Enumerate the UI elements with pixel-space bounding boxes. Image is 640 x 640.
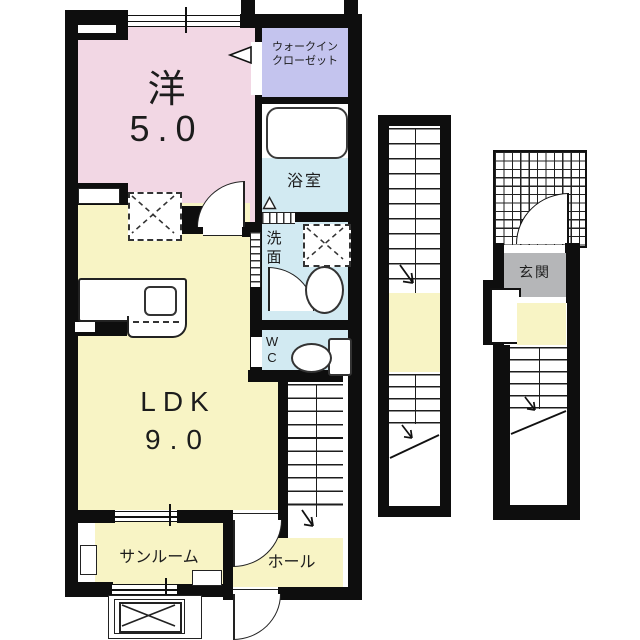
- bathroom-label: 浴室: [262, 167, 348, 191]
- bath-door-triangle-icon: [262, 196, 277, 210]
- washroom-sliding-door: [250, 232, 261, 287]
- laundry-x-icon: [121, 604, 176, 627]
- wall-ldk-bottom-a: [65, 510, 115, 523]
- rt-landing-floor: [517, 303, 566, 345]
- rt-threshold-porch: [504, 245, 565, 253]
- laundry-machine-box: [119, 602, 182, 633]
- mid-stairs-lower-treads: [389, 374, 440, 424]
- floor-plan: 洋 5.0 LDK 9.0 ウォークイン クローゼット 浴室 洗 面 W C サ…: [0, 0, 640, 640]
- wall-bed-bath: [255, 103, 262, 222]
- washroom-label-char2: 面: [264, 248, 284, 267]
- western-room-size: 5.0: [78, 108, 255, 150]
- kitchen-counter-front: [127, 316, 187, 338]
- toilet-bowl-icon: [291, 343, 332, 373]
- rt-wall-bottom: [493, 505, 580, 520]
- sunroom-small-box: [192, 570, 222, 586]
- washing-machine-space: [303, 224, 351, 267]
- kitchen-counter-dashes: [133, 321, 179, 323]
- ldk-size: 9.0: [78, 424, 278, 456]
- window-tick-top: [185, 7, 187, 33]
- washroom-label: 洗 面: [264, 229, 284, 267]
- window-bedroom-top: [128, 15, 240, 27]
- wc-label-char1: W: [263, 334, 281, 350]
- sunroom-label: サンルーム: [95, 543, 223, 567]
- main-stairs-treads: [288, 384, 343, 517]
- wic-label: ウォークイン クローゼット: [261, 40, 349, 68]
- window-tick-sunroom-top: [169, 504, 171, 526]
- rt-wall-right-upper: [565, 243, 580, 303]
- wall-kitchen-slot: [75, 322, 95, 332]
- basin-icon: [305, 266, 344, 314]
- wc-label: W C: [263, 334, 281, 366]
- ldk-label: LDK: [78, 386, 278, 418]
- entrance-label: 玄関: [504, 262, 566, 282]
- rt-wall-left-lower: [493, 345, 510, 520]
- threshold-wc-door: [251, 337, 262, 367]
- wic-label-line1: ウォークイン: [261, 40, 349, 54]
- window-ldk-sunroom: [115, 511, 177, 522]
- bath-sliding-door: [262, 212, 295, 224]
- shelf-box: [78, 188, 120, 204]
- wall-hall-bottom: [278, 587, 348, 600]
- wall-washroom-wc: [262, 320, 348, 330]
- wall-left: [65, 10, 78, 597]
- hall-label: ホール: [240, 548, 343, 572]
- mid-tower-landing: [389, 293, 440, 372]
- wc-label-char2: C: [263, 350, 281, 366]
- mid-stairs-lower-arrow-icon: [400, 423, 420, 445]
- wall-bath-washroom: [295, 212, 348, 222]
- washroom-label-char1: 洗: [264, 229, 284, 248]
- washing-machine-x-icon: [305, 226, 345, 261]
- mid-stairs-upper-arrow-icon: [397, 263, 421, 293]
- wall-sunroom-bottom-a: [65, 582, 113, 597]
- entrance-door-arc: [233, 594, 281, 640]
- wall-wic-bottom: [255, 97, 348, 104]
- refrigerator-space: [128, 192, 182, 241]
- rt-stairs-arrow-icon: [523, 395, 543, 417]
- mid-stairs-lower-centerline: [415, 374, 417, 424]
- wall-stair-left: [278, 382, 288, 538]
- ldk-floor: [78, 203, 250, 510]
- window-sunroom-bottom: [112, 584, 177, 595]
- rt-wall-right-lower: [567, 302, 580, 520]
- main-stairs-arrow-icon: [299, 508, 321, 534]
- refrigerator-x-icon: [130, 194, 176, 235]
- main-stairs-centerline: [316, 384, 318, 517]
- wic-label-line2: クローゼット: [261, 54, 349, 68]
- wall-stub-top-a: [241, 0, 255, 17]
- kitchen-sink: [144, 286, 177, 316]
- wall-topleft-slot: [78, 25, 116, 33]
- western-room-label: 洋: [78, 58, 255, 113]
- bathtub-icon: [266, 107, 348, 159]
- wall-right: [348, 14, 362, 600]
